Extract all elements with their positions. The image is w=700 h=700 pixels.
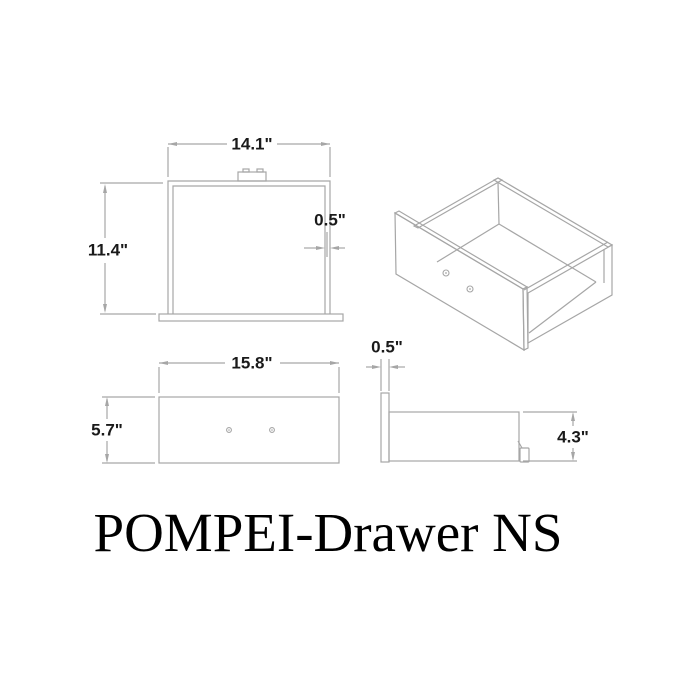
front-view-height-label: 5.7"	[91, 421, 123, 440]
top-view-clip-tab-left	[243, 169, 249, 172]
arrowhead-right	[330, 361, 339, 365]
arrowhead-up	[103, 184, 107, 193]
iso-floor-back-edge	[499, 224, 596, 282]
iso-screw-hole-right-center	[469, 288, 471, 290]
arrowhead-right	[321, 142, 330, 146]
top-view-slide-clip	[238, 172, 266, 181]
top-view-inner-wall	[173, 186, 325, 314]
front-view-width-label: 15.8"	[231, 354, 272, 373]
iso-left-wall-top	[414, 178, 502, 228]
arrowhead-up	[105, 397, 109, 406]
iso-right-wall-face	[528, 245, 612, 343]
iso-screw-hole-left-center	[445, 272, 447, 274]
iso-front-panel-edge	[523, 287, 528, 350]
arrowhead-left	[330, 246, 339, 250]
arrowhead-left	[389, 365, 398, 369]
product-title: POMPEI-Drawer NS	[94, 502, 563, 563]
iso-floor-right-edge	[529, 282, 596, 333]
front-panel-view: 15.8" 5.7"	[91, 354, 339, 464]
arrowhead-left	[159, 361, 168, 365]
iso-front-panel-face	[395, 213, 524, 350]
iso-back-wall-top	[494, 178, 612, 247]
top-view-thickness-label: 0.5"	[314, 211, 346, 230]
arrowhead-down	[103, 304, 107, 313]
side-view-front-panel-edge	[381, 393, 389, 462]
arrowhead-right	[372, 365, 381, 369]
top-view: 14.1" 11.4" 0.5"	[88, 135, 346, 322]
iso-inner-corner-back	[498, 182, 499, 224]
side-view-slide-clip	[520, 448, 529, 462]
arrowhead-right	[316, 246, 325, 250]
arrowhead-up	[571, 412, 575, 421]
side-view-side-panel	[389, 412, 519, 461]
side-view-thickness-label: 0.5"	[371, 338, 403, 357]
technical-drawing-sheet: 14.1" 11.4" 0.5"	[0, 0, 700, 700]
front-screw-hole-left-center	[228, 429, 230, 431]
side-view-height-label: 4.3"	[557, 428, 589, 447]
top-view-depth-label: 11.4"	[88, 241, 128, 260]
front-panel-outline	[159, 397, 339, 463]
arrowhead-left	[168, 142, 177, 146]
isometric-view	[395, 178, 612, 350]
arrowhead-down	[571, 452, 575, 461]
arrowhead-down	[105, 454, 109, 463]
drawing-canvas: 14.1" 11.4" 0.5"	[0, 0, 700, 700]
side-view: 0.5" 4.3"	[366, 338, 589, 463]
top-view-width-label: 14.1"	[231, 135, 272, 154]
top-view-front-panel-edge	[159, 314, 343, 321]
iso-front-panel-top	[395, 211, 527, 289]
front-screw-hole-right-center	[271, 429, 273, 431]
top-view-clip-tab-right	[257, 169, 263, 172]
